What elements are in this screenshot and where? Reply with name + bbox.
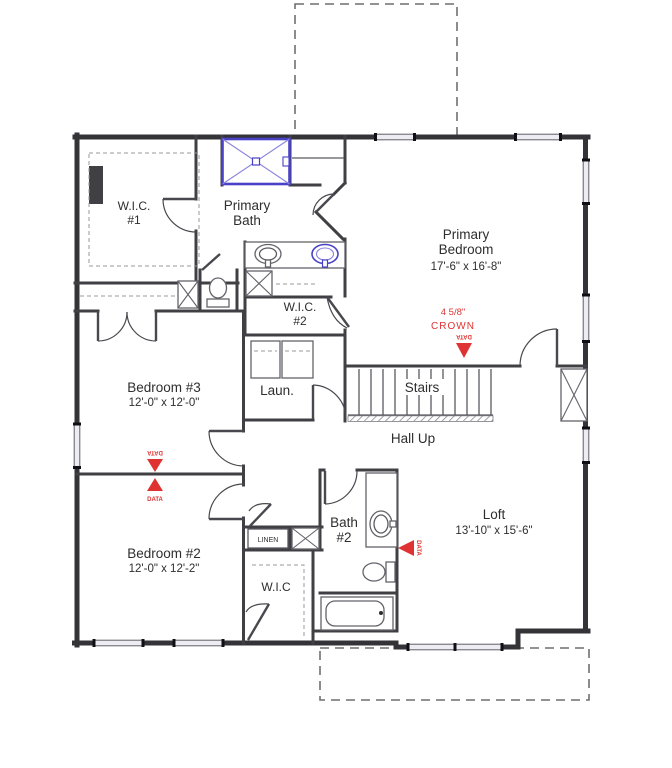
data-triangle-icon	[398, 540, 414, 556]
label-stairs: Stairs	[405, 380, 440, 395]
window	[374, 133, 416, 141]
door-bedroom3	[209, 431, 244, 466]
primary-vanity	[245, 242, 345, 268]
window	[582, 159, 590, 206]
roof-overhang-dashed	[295, 4, 589, 700]
chase-box	[246, 271, 272, 296]
washer-dryer-icon	[251, 341, 313, 378]
label-laundry: Laun.	[260, 383, 294, 398]
crown-label: CROWN	[431, 321, 475, 332]
dims-loft: 13'-10" x 15'-6"	[455, 525, 532, 537]
dims-bedroom2: 12'-0" x 12'-2"	[129, 563, 200, 575]
label-wic3: W.I.C	[261, 580, 291, 594]
overhang-top	[295, 4, 457, 137]
floor-plan-page: 4 5/8" CROWN DATA DATA DATA DATA W.I.C. …	[0, 0, 672, 768]
wic1-wall-stub	[89, 166, 103, 204]
window	[407, 643, 504, 651]
wall-wic3-right	[313, 550, 320, 643]
exterior-wall-bottom	[75, 631, 589, 647]
data-marker-primary-bedroom: DATA	[455, 333, 472, 358]
door-wic2	[327, 297, 349, 328]
door-laundry	[313, 385, 346, 419]
label-wic2-number: #2	[293, 314, 307, 328]
data-triangle-icon	[456, 343, 472, 358]
label-bath2-number: #2	[336, 530, 351, 545]
data-marker-loft: DATA	[398, 540, 421, 557]
data-marker-bedroom-wall: DATA DATA	[146, 449, 163, 503]
label-primary-bedroom-2: Bedroom	[439, 242, 494, 257]
dims-primary-bedroom: 17'-6" x 16'-8"	[431, 261, 502, 273]
window	[173, 639, 225, 647]
bath-chamfer-walls	[316, 183, 345, 239]
door-wic3	[246, 604, 269, 640]
label-primary-bath: Primary	[224, 198, 271, 213]
toilet-icon	[207, 278, 229, 307]
svg-text:DATA: DATA	[415, 540, 421, 556]
svg-text:DATA: DATA	[147, 497, 163, 503]
door-bedroom2	[209, 484, 244, 519]
window	[582, 294, 590, 344]
door-bedroom3-closet	[98, 311, 156, 341]
fireplace-chase-box	[561, 369, 587, 421]
door-linen	[249, 504, 271, 526]
window	[582, 427, 590, 465]
overhang-bottom	[320, 648, 589, 700]
label-primary-bath-2: Bath	[233, 213, 261, 228]
label-bath2: Bath	[330, 515, 358, 530]
label-bedroom2: Bedroom #2	[127, 546, 201, 561]
door-toilet-compartment	[202, 254, 220, 270]
shower-icon	[223, 139, 290, 184]
floor-plan-drawing: 4 5/8" CROWN DATA DATA DATA DATA W.I.C. …	[0, 0, 672, 768]
bath2-vanity	[366, 473, 397, 547]
data-triangle-icon	[147, 459, 163, 472]
window	[93, 639, 145, 647]
door-bath2	[325, 471, 357, 504]
stairs-graphic	[348, 369, 493, 421]
svg-text:DATA: DATA	[146, 449, 162, 455]
label-loft: Loft	[483, 507, 506, 522]
door-wic1	[163, 199, 196, 232]
window	[73, 423, 81, 470]
bathtub-icon	[321, 597, 393, 630]
chase-box	[178, 281, 198, 308]
door-primary-bath	[313, 194, 334, 215]
window	[514, 133, 562, 141]
crown-size-label: 4 5/8"	[441, 307, 466, 318]
label-wic1-number: #1	[127, 213, 141, 227]
label-hall-up: Hall Up	[391, 431, 435, 446]
chase-box	[292, 528, 319, 549]
label-primary-bedroom: Primary	[443, 227, 490, 242]
door-primary-bedroom	[520, 329, 557, 366]
label-wic1: W.I.C.	[118, 199, 151, 213]
label-wic2: W.I.C.	[284, 300, 317, 314]
stair-hatch	[348, 416, 493, 422]
wic3-shelf-dashed	[252, 565, 304, 639]
dims-bedroom3: 12'-0" x 12'-0"	[129, 397, 200, 409]
svg-text:DATA: DATA	[455, 333, 471, 339]
label-bedroom3: Bedroom #3	[127, 380, 201, 395]
data-triangle-icon	[147, 478, 163, 491]
label-linen: LINEN	[258, 537, 279, 544]
toilet-icon	[363, 562, 395, 582]
